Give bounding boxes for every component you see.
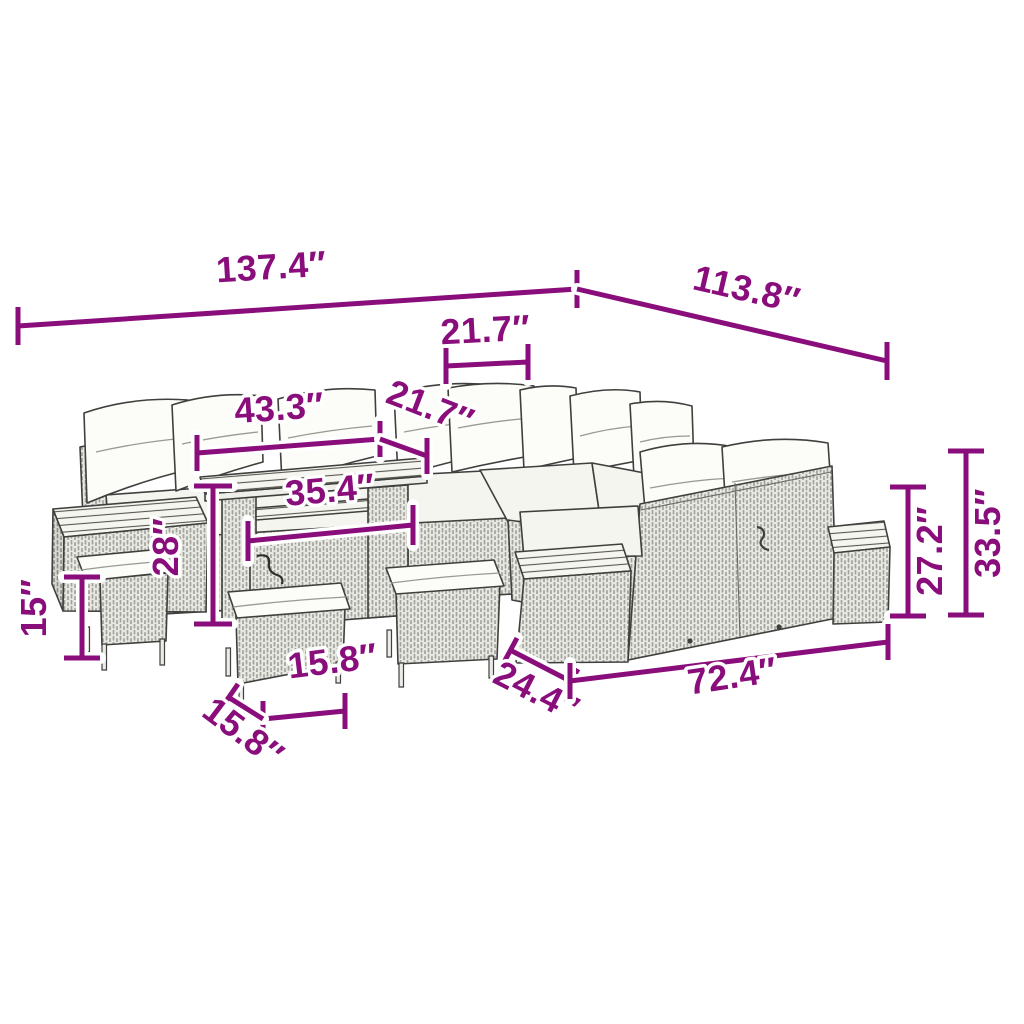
stool-leg — [399, 663, 404, 687]
dim-label-table-shelf-width: 35.4″ — [283, 465, 376, 514]
stool-body — [396, 584, 500, 664]
dim-label-stool-height: 15″ — [13, 579, 54, 638]
stool-leg — [489, 656, 494, 678]
back-pillow — [520, 386, 578, 470]
dim-label-seat-width: 21.7″ — [439, 307, 531, 353]
dim-label-sofa-length: 72.4″ — [685, 649, 780, 703]
rattan-body — [516, 571, 631, 663]
dim-label-total-height: 33.5″ — [967, 488, 1008, 578]
dimension-diagram: 137.4″ 113.8″ 21.7″ 43.3″ 21.7″ 35.4″ 28… — [0, 0, 1024, 1024]
screw-hole — [776, 624, 781, 629]
stool-body — [100, 573, 168, 645]
dimension-seat-width: 21.7″ — [439, 307, 531, 384]
side-table-right — [828, 521, 890, 624]
stool-leg — [387, 630, 392, 657]
dim-label-overall-width: 137.4″ — [215, 243, 328, 291]
dim-label-table-length: 43.3″ — [233, 384, 325, 431]
rattan-body — [833, 547, 890, 624]
furniture-dimension-illustration: 137.4″ 113.8″ 21.7″ 43.3″ 21.7″ 35.4″ 28… — [0, 0, 1024, 1024]
dimension-overall-depth: 113.8″ — [577, 257, 887, 380]
side-table-middle — [515, 544, 631, 663]
dim-label-backrest-height: 27.2″ — [909, 506, 950, 596]
dimension-total-height: 33.5″ — [948, 451, 1008, 615]
dim-label-table-height: 28″ — [145, 518, 186, 577]
stool-leg — [226, 648, 231, 676]
screw-hole — [687, 638, 692, 643]
stool-right — [386, 560, 504, 687]
dim-label-overall-depth: 113.8″ — [689, 257, 804, 321]
stool-leg — [160, 639, 165, 665]
dimension-backrest-height: 27.2″ — [890, 487, 950, 616]
